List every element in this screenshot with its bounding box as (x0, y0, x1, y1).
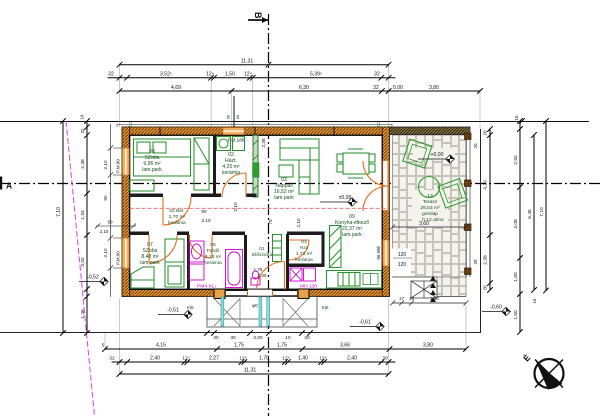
svg-text:03: 03 (301, 239, 307, 245)
svg-text:75: 75 (268, 219, 273, 225)
svg-text:2,10: 2,10 (100, 229, 109, 234)
svg-text:2,10: 2,10 (233, 202, 238, 212)
svg-text:1,40: 1,40 (298, 356, 308, 362)
svg-text:B: B (253, 12, 263, 19)
svg-text:32: 32 (109, 356, 115, 362)
svg-text:32: 32 (80, 128, 85, 134)
svg-text:6,46: 6,46 (527, 209, 533, 219)
svg-text:3,66: 3,66 (340, 343, 350, 349)
svg-text:5,39⁵: 5,39⁵ (310, 72, 322, 78)
svg-text:8|8: 8|8 (187, 305, 194, 310)
svg-text:3,80: 3,80 (429, 85, 439, 91)
svg-text:1,73 m²: 1,73 m² (296, 251, 313, 257)
svg-text:2,10: 2,10 (296, 218, 301, 228)
svg-text:Kra: Kra (300, 245, 308, 251)
svg-text:2,70 m²: 2,70 m² (169, 214, 186, 220)
svg-text:2,30: 2,30 (258, 273, 267, 278)
svg-text:20: 20 (473, 259, 478, 265)
svg-text:01: 01 (259, 246, 265, 252)
svg-text:lam.park: lam.park (274, 195, 294, 201)
svg-text:-0,61: -0,61 (359, 320, 371, 326)
svg-text:-0,51: -0,51 (167, 308, 179, 314)
svg-text:32: 32 (108, 72, 114, 78)
svg-text:3,02: 3,02 (80, 257, 86, 267)
svg-text:3,52⁵: 3,52⁵ (160, 72, 172, 78)
svg-text:2,10: 2,10 (103, 248, 108, 258)
svg-text:+0,00: +0,00 (431, 152, 444, 158)
svg-text:2,40: 2,40 (347, 356, 357, 362)
svg-text:P.M.90: P.M.90 (116, 159, 121, 173)
svg-text:kerámia: kerámia (295, 257, 313, 263)
svg-text:20: 20 (473, 143, 478, 149)
svg-text:16: 16 (514, 115, 519, 121)
svg-text:1,46: 1,46 (80, 309, 86, 319)
svg-text:1,75: 1,75 (234, 343, 244, 349)
svg-text:lam.park: lam.park (142, 167, 162, 173)
svg-text:8: 8 (227, 115, 230, 121)
svg-text:8|8: 8|8 (322, 305, 329, 310)
svg-text:90: 90 (201, 209, 207, 214)
svg-text:0,00: 0,00 (393, 85, 403, 91)
svg-text:11,31: 11,31 (244, 368, 257, 374)
svg-text:2,38: 2,38 (483, 255, 489, 265)
svg-text:2,38: 2,38 (80, 159, 86, 169)
svg-text:4,69: 4,69 (171, 85, 181, 91)
svg-text:1,75: 1,75 (277, 343, 287, 349)
svg-text:16: 16 (532, 298, 537, 304)
svg-text:10: 10 (285, 335, 291, 340)
svg-text:04 Bel.: 04 Bel. (169, 208, 184, 214)
svg-text:kerámia: kerámia (168, 220, 186, 226)
svg-text:1,50: 1,50 (225, 72, 235, 78)
svg-text:30: 30 (213, 335, 219, 340)
svg-text:16: 16 (80, 114, 85, 120)
svg-text:P.M.90: P.M.90 (116, 251, 121, 265)
svg-text:15: 15 (409, 296, 415, 301)
svg-text:12⁴: 12⁴ (282, 356, 289, 361)
svg-text:2,27: 2,27 (209, 356, 219, 362)
svg-text:2,40: 2,40 (150, 356, 160, 362)
svg-text:90: 90 (107, 220, 113, 225)
svg-text:12⁴: 12⁴ (206, 72, 214, 78)
svg-text:1,50: 1,50 (430, 296, 439, 301)
svg-text:4,15: 4,15 (156, 343, 166, 349)
svg-text:lam.park: lam.park (342, 232, 362, 238)
svg-text:120: 120 (398, 252, 407, 258)
svg-text:φ0: φ0 (252, 303, 258, 308)
svg-text:12⁴: 12⁴ (319, 356, 326, 361)
svg-text:kerámia: kerámia (222, 170, 240, 176)
svg-text:12⁴: 12⁴ (244, 72, 252, 78)
svg-text:17: 17 (399, 296, 405, 301)
svg-text:20: 20 (483, 130, 488, 136)
svg-text:30: 30 (304, 335, 310, 340)
svg-text:greslap: greslap (422, 211, 438, 217)
svg-text:A: A (6, 181, 12, 191)
svg-text:3,08: 3,08 (513, 219, 519, 229)
svg-text:12⁴: 12⁴ (239, 356, 246, 361)
svg-text:05: 05 (210, 242, 216, 248)
svg-text:8: 8 (237, 115, 240, 121)
svg-text:06 Wd: 06 Wd (376, 246, 381, 260)
svg-text:26,53 m²: 26,53 m² (420, 205, 440, 211)
svg-text:20: 20 (483, 285, 488, 291)
svg-text:120: 120 (398, 262, 407, 268)
svg-text:-0,60: -0,60 (490, 305, 502, 311)
svg-text:5: 5 (102, 343, 105, 349)
svg-text:h:12.alm2: h:12.alm2 (422, 217, 444, 223)
svg-text:1,50: 1,50 (513, 310, 519, 320)
svg-text:1,50: 1,50 (513, 272, 519, 282)
svg-text:90: 90 (103, 195, 108, 201)
svg-text:32: 32 (373, 85, 379, 91)
svg-text:1,75: 1,75 (254, 267, 263, 272)
svg-text:12⁴: 12⁴ (182, 356, 189, 361)
svg-text:1,34: 1,34 (80, 210, 86, 220)
svg-text:lam.park: lam.park (140, 260, 160, 266)
svg-text:7,10: 7,10 (539, 207, 545, 217)
svg-text:4,20: 4,20 (483, 180, 489, 190)
svg-text:2,10: 2,10 (103, 160, 108, 170)
svg-text:Terasz: Terasz (423, 199, 438, 205)
svg-text:Fürdő: Fürdő (207, 248, 220, 254)
svg-text:2,00: 2,00 (253, 335, 263, 340)
svg-text:3,80: 3,80 (423, 343, 433, 349)
svg-text:3,13 m²: 3,13 m² (205, 254, 222, 260)
svg-text:30: 30 (230, 335, 236, 340)
svg-text:2,52: 2,52 (513, 155, 519, 165)
svg-text:2,10: 2,10 (201, 218, 211, 223)
svg-text:11,31: 11,31 (241, 59, 254, 65)
svg-text:2,38: 2,38 (261, 138, 266, 148)
svg-text:13: 13 (427, 193, 433, 199)
svg-text:6,30: 6,30 (299, 85, 309, 91)
svg-text:7,10: 7,10 (56, 207, 62, 217)
svg-text:kerámia: kerámia (204, 260, 222, 266)
svg-text:-0,52: -0,52 (87, 275, 99, 281)
svg-text:1,70: 1,70 (259, 356, 269, 362)
svg-text:30: 30 (382, 356, 388, 362)
svg-text:32: 32 (374, 72, 380, 78)
svg-text:Előszoba: Előszoba (252, 252, 272, 258)
